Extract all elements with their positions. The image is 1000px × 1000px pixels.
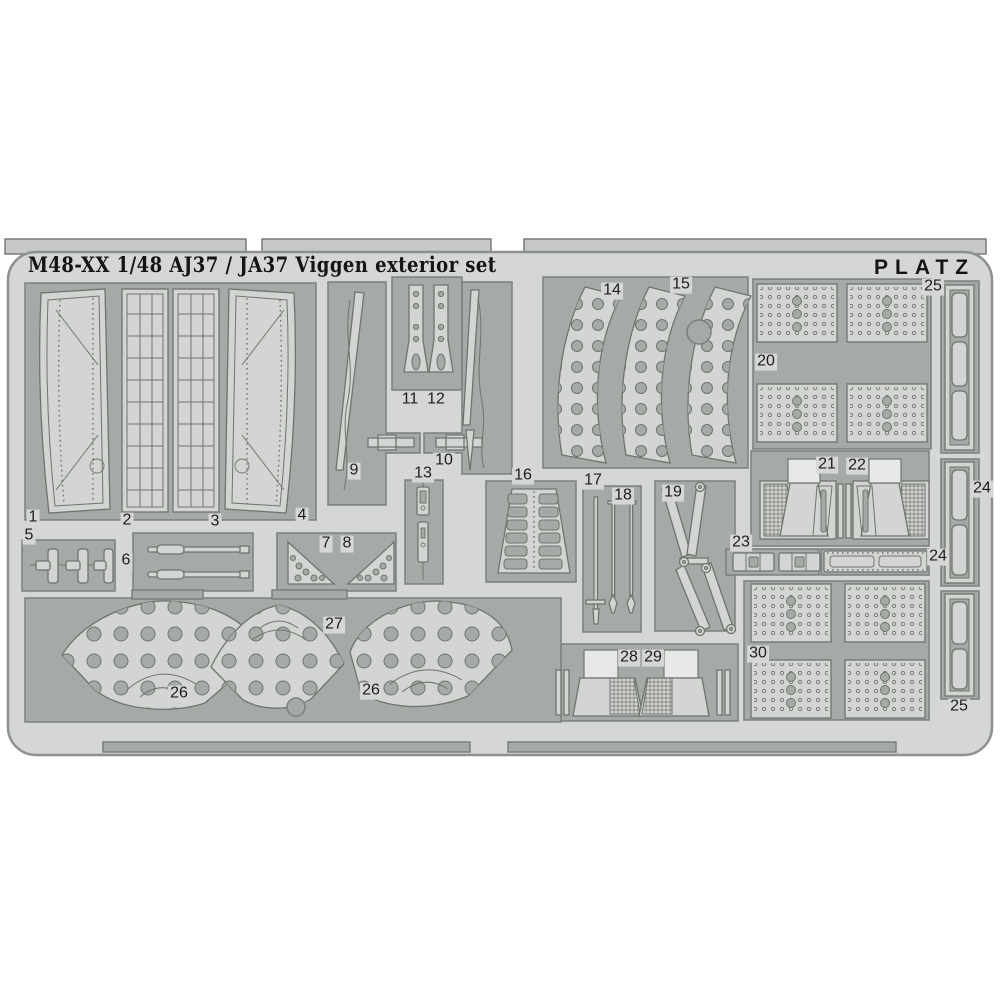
part-label-19: 19	[662, 485, 684, 502]
part-25-strip	[945, 285, 974, 450]
part-label-2: 2	[121, 513, 134, 530]
part-label-15: 15	[670, 277, 692, 294]
part-label-17: 17	[582, 473, 604, 490]
part-4-panel	[225, 289, 295, 513]
part-label-11: 11	[400, 392, 421, 409]
part-label-3: 3	[209, 514, 222, 531]
part-label-20: 20	[755, 354, 777, 371]
part-2-ladder	[122, 289, 168, 512]
part-3-ladder	[173, 289, 219, 512]
bottom-rail	[103, 742, 470, 752]
part-label-16: 16	[512, 468, 534, 485]
part-label-14: 14	[601, 283, 623, 300]
part-label-30: 30	[747, 646, 769, 663]
part-label-22: 22	[846, 458, 868, 475]
part-label-21: 21	[816, 457, 838, 474]
sheet-title: M48-XX 1/48 AJ37 / JA37 Viggen exterior …	[28, 252, 497, 277]
part-label-12: 12	[425, 392, 447, 409]
part-label-1: 1	[27, 510, 40, 527]
part-label-28: 28	[618, 650, 640, 667]
part-label-18: 18	[612, 488, 634, 505]
part-label-13: 13	[412, 466, 434, 483]
part-label-25-a: 25	[922, 279, 944, 296]
part-label-24-a: 24	[971, 481, 993, 498]
brand-logo: PLATZ	[874, 256, 975, 280]
part-label-6: 6	[120, 553, 133, 570]
part-label-23: 23	[730, 535, 752, 552]
part-label-24-b: 24	[927, 549, 949, 566]
part-label-5: 5	[23, 528, 36, 545]
part-24-bar	[824, 551, 927, 572]
bottom-rail	[508, 742, 896, 752]
part-label-8: 8	[341, 536, 354, 553]
part-label-9: 9	[348, 463, 361, 480]
part-label-4: 4	[296, 508, 309, 525]
part-label-25-b: 25	[948, 699, 970, 716]
part-label-10: 10	[433, 453, 455, 470]
part-label-29: 29	[642, 650, 664, 667]
part-label-26-b: 26	[360, 683, 382, 700]
part-1-panel	[40, 289, 110, 513]
part-label-26-a: 26	[168, 686, 190, 703]
part-24-strip	[945, 462, 974, 583]
part-25-strip	[945, 594, 974, 696]
product-photo-etch-fret: M48-XX 1/48 AJ37 / JA37 Viggen exterior …	[0, 0, 1000, 1000]
part-label-7: 7	[320, 536, 333, 553]
fret-drawing	[0, 0, 1000, 1000]
part-label-27: 27	[323, 617, 345, 634]
